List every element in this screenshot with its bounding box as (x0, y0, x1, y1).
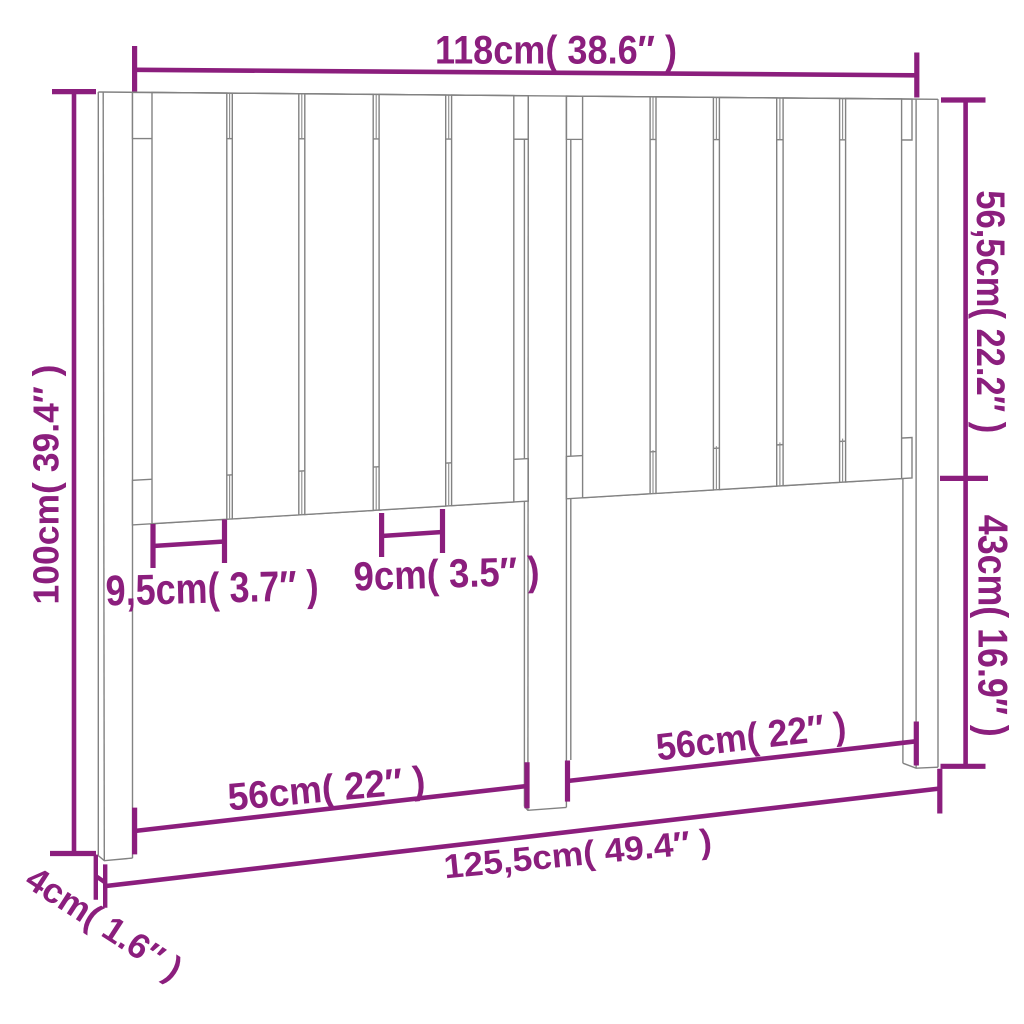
svg-text:118cm( 38.6″ ): 118cm( 38.6″ ) (435, 29, 677, 73)
svg-text:43cm( 16.9″ ): 43cm( 16.9″ ) (970, 515, 1017, 737)
svg-text:100cm( 39.4″ ): 100cm( 39.4″ ) (26, 365, 67, 605)
svg-text:56,5cm( 22.2″ ): 56,5cm( 22.2″ ) (968, 190, 1012, 433)
svg-text:9,5cm( 3.7″ ): 9,5cm( 3.7″ ) (105, 562, 319, 616)
svg-text:9cm( 3.5″ ): 9cm( 3.5″ ) (353, 548, 540, 600)
